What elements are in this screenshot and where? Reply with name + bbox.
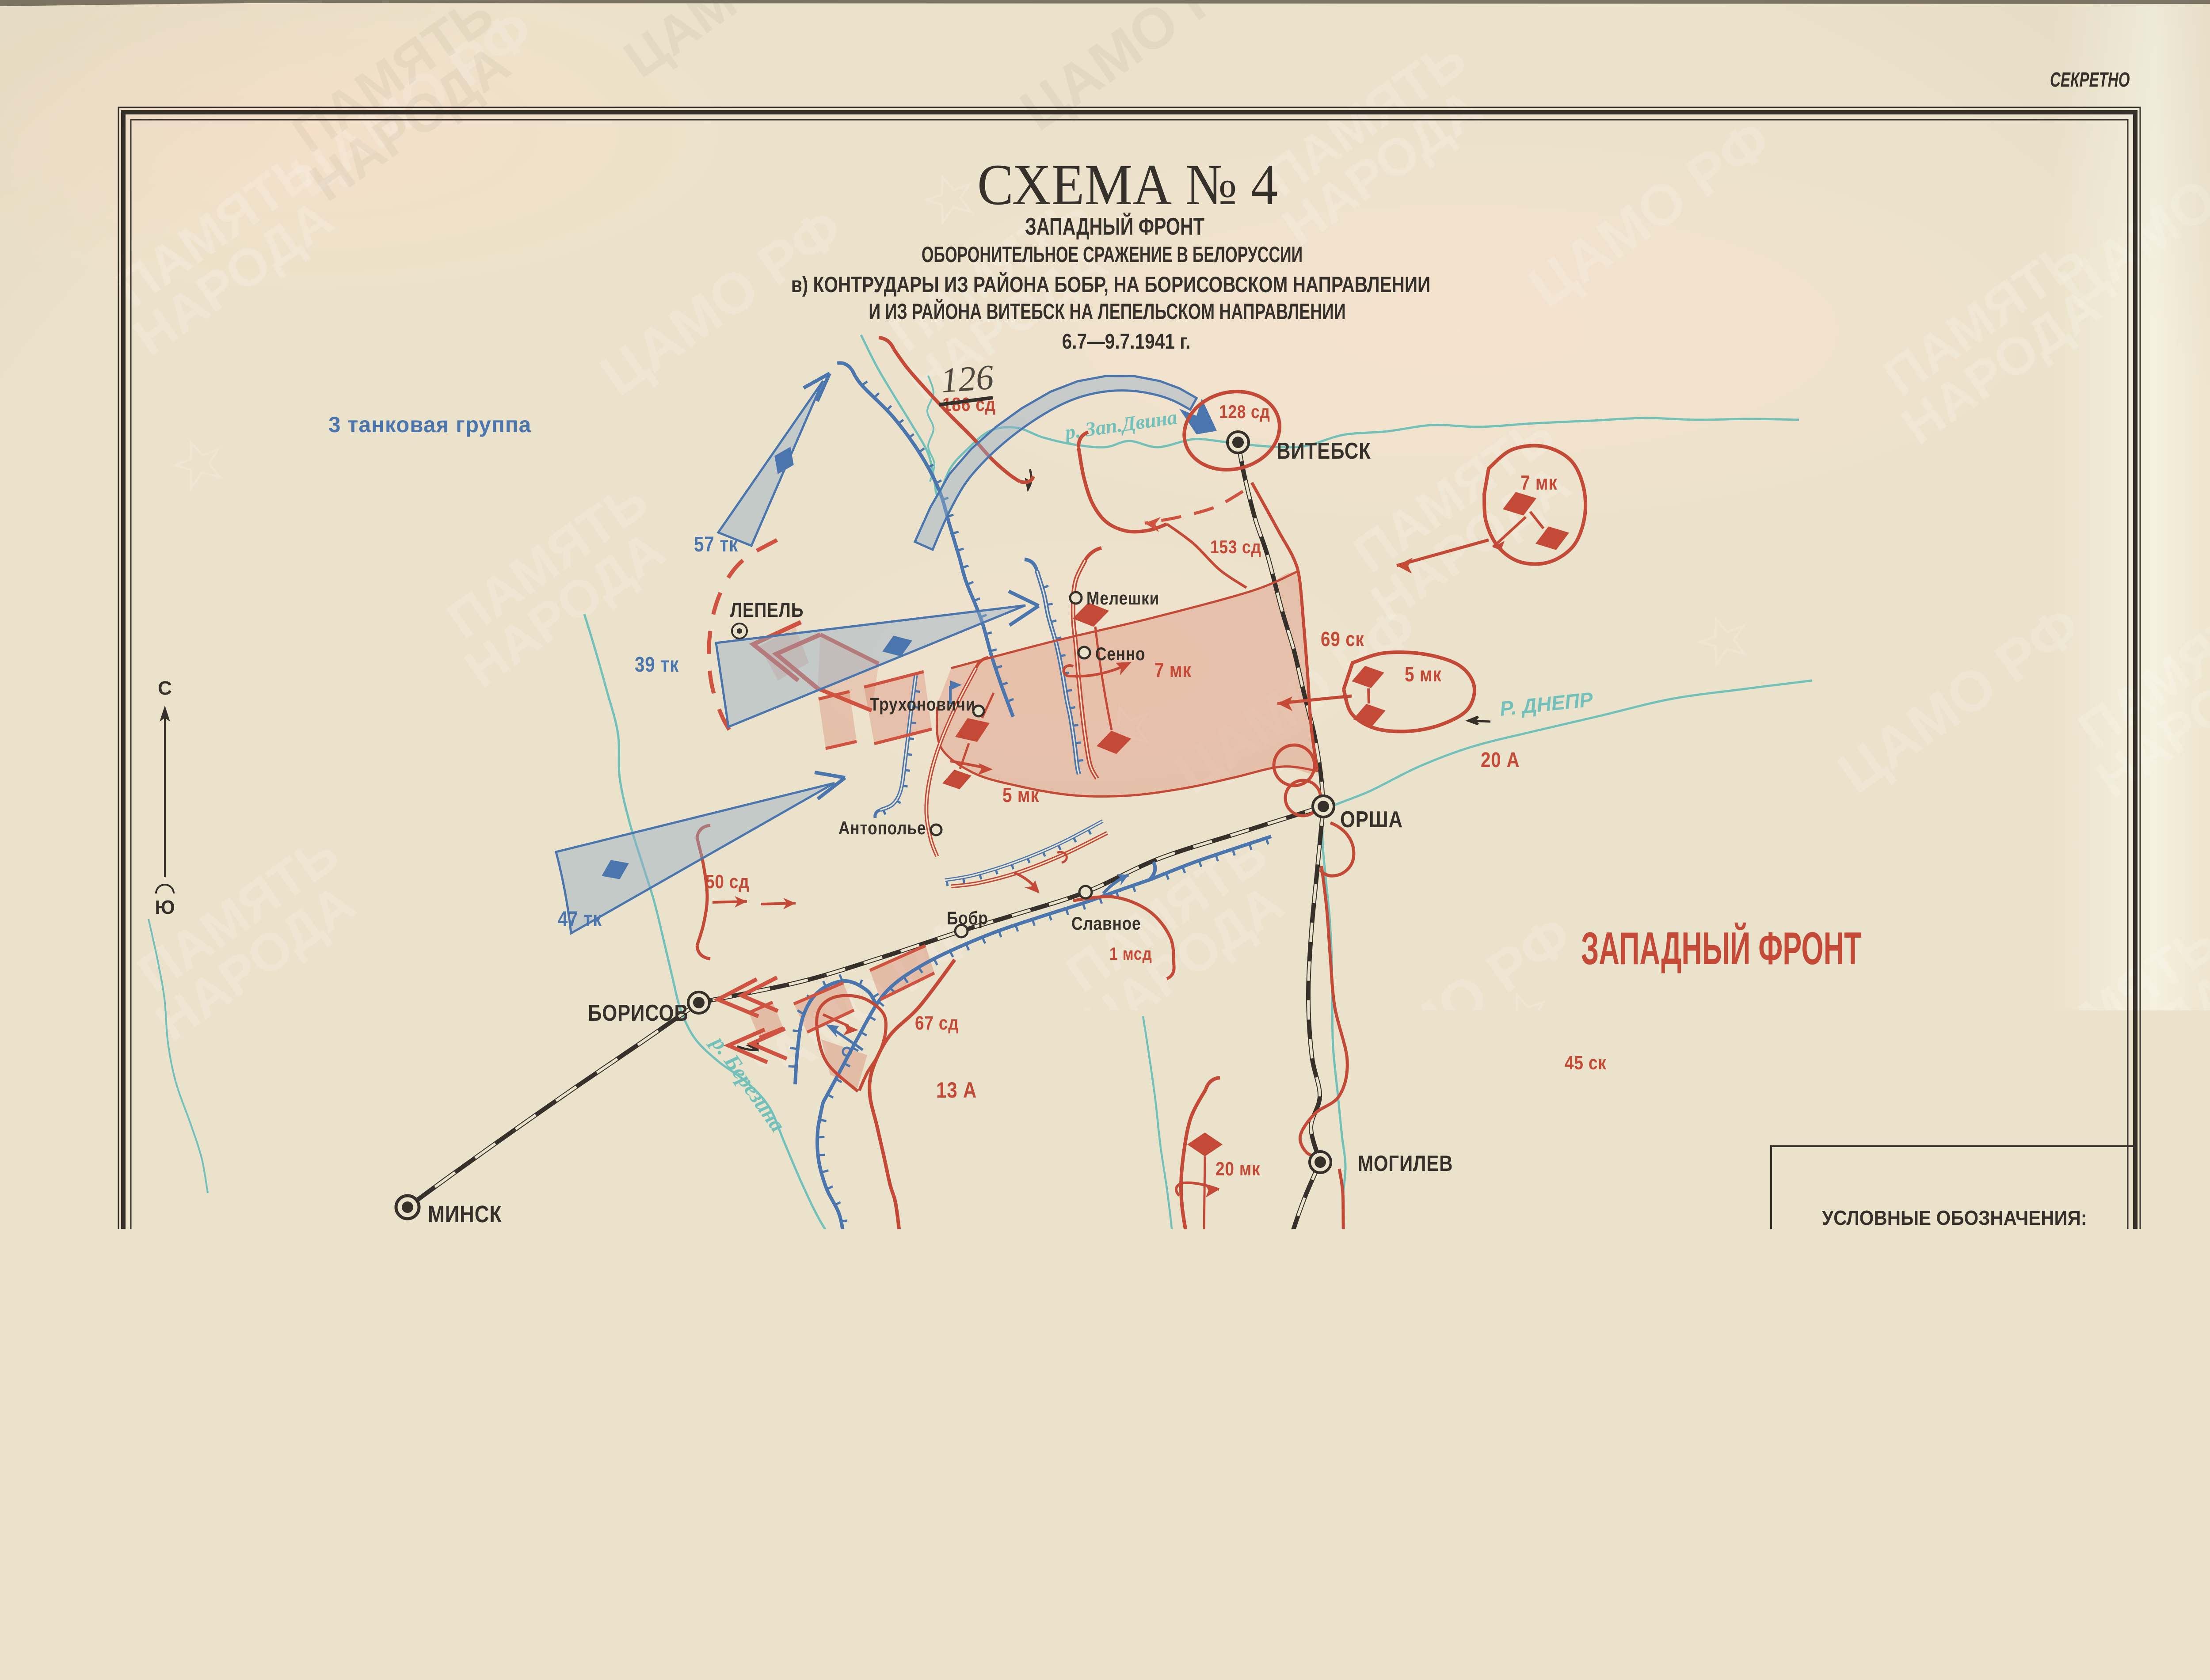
svg-text:Антополье: Антополье xyxy=(838,818,926,839)
svg-text:128 сд: 128 сд xyxy=(1219,402,1270,422)
svg-text:Положение на 9.7.41 г.: Положение на 9.7.41 г. xyxy=(1872,1329,2094,1352)
svg-text:СЕКРЕТНО: СЕКРЕТНО xyxy=(2050,69,2130,91)
svg-text:ОБОРОНИТЕЛЬНОЕ СРАЖЕНИЕ В БЕЛО: ОБОРОНИТЕЛЬНОЕ СРАЖЕНИЕ В БЕЛОРУССИИ xyxy=(922,243,1303,267)
svg-text:69 ск: 69 ск xyxy=(1321,628,1364,650)
svg-text:МОГИЛЕВ: МОГИЛЕВ xyxy=(1358,1151,1453,1176)
svg-text:СХЕМА № 4: СХЕМА № 4 xyxy=(977,152,1278,217)
svg-text:5 мк: 5 мк xyxy=(1002,784,1039,806)
svg-text:50 сд: 50 сд xyxy=(705,870,750,893)
svg-text:Сенно: Сенно xyxy=(1095,644,1145,665)
svg-text:7 мк: 7 мк xyxy=(1155,659,1191,681)
svg-text:Ю: Ю xyxy=(155,897,175,918)
svg-text:2 ск: 2 ск xyxy=(954,1267,987,1289)
svg-text:153 сд: 153 сд xyxy=(1210,537,1261,558)
svg-text:39 тк: 39 тк xyxy=(635,653,679,677)
svg-text:47 тк: 47 тк xyxy=(558,908,602,931)
svg-text:Ближайшая задача: Ближайшая задача xyxy=(1872,1388,2065,1411)
svg-text:10: 10 xyxy=(1121,1595,1142,1619)
svg-text:45 ск: 45 ск xyxy=(1565,1052,1607,1074)
svg-text:46 тк: 46 тк xyxy=(658,1266,702,1289)
svg-text:УСЛОВНЫЕ ОБОЗНАЧЕНИЯ:: УСЛОВНЫЕ ОБОЗНАЧЕНИЯ: xyxy=(1822,1207,2087,1229)
svg-text:1 мсд: 1 мсд xyxy=(1109,944,1152,963)
svg-text:126: 126 xyxy=(939,358,995,400)
svg-text:6.7—9.7.1941 г.: 6.7—9.7.1941 г. xyxy=(1062,330,1191,353)
svg-text:Направления ударов: Направления ударов xyxy=(1872,1447,2085,1470)
svg-text:МИНСК: МИНСК xyxy=(428,1201,502,1228)
svg-text:Масштаб 1:1000 000: Масштаб 1:1000 000 xyxy=(187,1509,423,1535)
svg-text:Трухоновичи: Трухоновичи xyxy=(870,694,975,715)
svg-text:С: С xyxy=(158,677,172,699)
svg-text:20 мк: 20 мк xyxy=(1215,1158,1260,1180)
svg-text:ОРША: ОРША xyxy=(1340,807,1403,832)
svg-text:67 сд: 67 сд xyxy=(915,1012,959,1034)
svg-text:ЗАПАДНЫЙ ФРОНТ: ЗАПАДНЫЙ ФРОНТ xyxy=(1581,922,1862,974)
svg-text:5 мк: 5 мк xyxy=(1405,663,1441,686)
svg-text:3 танковая группа: 3 танковая группа xyxy=(328,412,531,437)
svg-text:13 А: 13 А xyxy=(936,1078,977,1102)
svg-text:57 тк: 57 тк xyxy=(694,533,738,556)
svg-text:Мелешки: Мелешки xyxy=(1086,588,1159,609)
svg-text:Бобр: Бобр xyxy=(947,908,988,929)
svg-text:И ИЗ РАЙОНА ВИТЕБСК НА ЛЕПЕЛЬС: И ИЗ РАЙОНА ВИТЕБСК НА ЛЕПЕЛЬСКОМ НАПРАВ… xyxy=(869,299,1345,324)
svg-text:ВИТЕБСК: ВИТЕБСК xyxy=(1276,439,1371,464)
svg-text:7 мк: 7 мк xyxy=(1520,471,1557,494)
svg-text:Славное: Славное xyxy=(1071,913,1141,934)
svg-text:ЗАПАДНЫЙ ФРОНТ: ЗАПАДНЫЙ ФРОНТ xyxy=(1025,213,1204,240)
svg-text:в) КОНТРУДАРЫ ИЗ РАЙОНА БОБР,: в) КОНТРУДАРЫ ИЗ РАЙОНА БОБР, НА БОРИСОВ… xyxy=(791,272,1430,297)
svg-text:20 А: 20 А xyxy=(1481,749,1520,772)
svg-text:Положение на 6.7.41 г.: Положение на 6.7.41 г. xyxy=(1872,1273,2094,1296)
svg-text:ЛЕПЕЛЬ: ЛЕПЕЛЬ xyxy=(730,599,804,621)
svg-text:БОРИСОВ: БОРИСОВ xyxy=(588,1001,689,1026)
